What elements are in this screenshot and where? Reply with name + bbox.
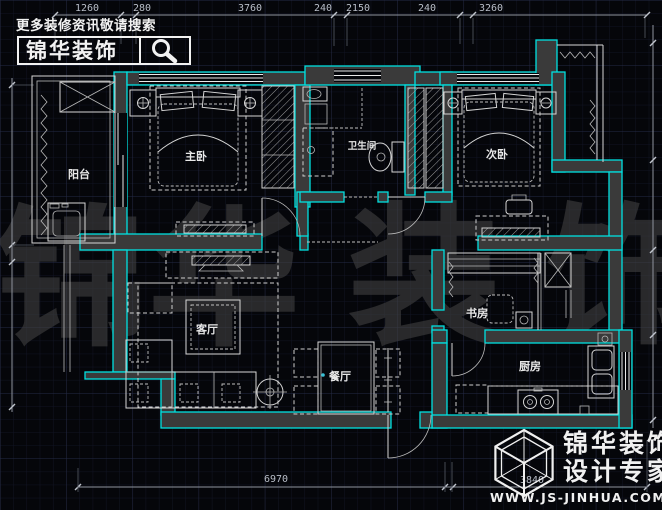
footer-brand-line2: 设计专家 [563,457,662,486]
dining-label-dot [321,373,325,377]
room-label-study: 书房 [466,306,488,320]
dim-top-240a: 240 [314,3,332,14]
room-label-living: 客厅 [195,322,218,336]
cad-drawing: 锦 华 装 饰 1260 280 3760 240 2150 240 3260 [0,0,662,510]
room-label-kitchen: 厨房 [519,359,541,373]
brand-name: 锦华装饰 [26,39,118,63]
room-label-dining: 餐厅 [328,369,351,383]
dim-top-280: 280 [133,3,151,14]
tv [192,256,250,265]
dim-top-1260: 1260 [75,3,99,14]
dim-top-3760: 3760 [238,3,262,14]
room-label-balcony: 阳台 [68,167,90,181]
dim-top-240b: 240 [418,3,436,14]
room-label-master: 主卧 [185,149,207,163]
header-slogan: 更多装修资讯敬请搜索 [16,17,156,34]
dim-bottom-6970: 6970 [264,474,288,485]
room-label-second: 次卧 [486,147,508,161]
closet-strips [408,88,443,188]
master-wardrobe [262,86,294,188]
footer-url: WWW.JS-JINHUA.COM [490,490,662,505]
room-label-bath: 卫生间 [348,140,377,152]
floorplan-canvas: 锦 华 装 饰 1260 280 3760 240 2150 240 3260 [0,0,662,510]
dim-top-3260: 3260 [479,3,503,14]
dim-top-2150: 2150 [346,3,370,14]
footer-brand-line1: 锦华装饰 [563,429,662,458]
watermark-char-3: 装 [348,187,500,366]
